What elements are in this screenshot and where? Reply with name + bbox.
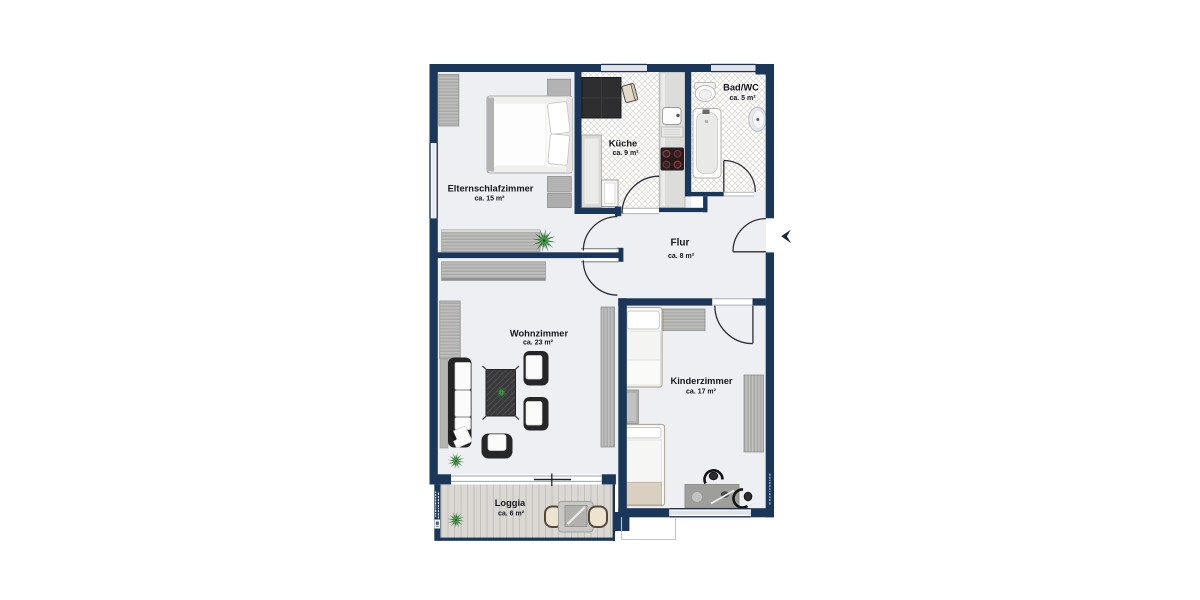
svg-text:ca. 5 m²: ca. 5 m²	[729, 95, 756, 102]
svg-text:Küche: Küche	[609, 139, 637, 149]
svg-text:Kinderzimmer: Kinderzimmer	[671, 376, 733, 386]
svg-text:ca. 23 m²: ca. 23 m²	[523, 340, 554, 347]
svg-text:Flur: Flur	[671, 238, 690, 249]
svg-text:Loggia: Loggia	[495, 498, 526, 508]
svg-text:ca. 6 m²: ca. 6 m²	[498, 511, 525, 518]
svg-text:Elternschlafzimmer: Elternschlafzimmer	[448, 184, 534, 194]
svg-text:Bad/WC: Bad/WC	[723, 83, 759, 93]
svg-text:ca. 9 m²: ca. 9 m²	[612, 150, 639, 157]
svg-text:ca. 15 m²: ca. 15 m²	[475, 196, 506, 203]
svg-text:ca. 17 m²: ca. 17 m²	[686, 389, 717, 396]
svg-text:Wohnzimmer: Wohnzimmer	[510, 329, 569, 339]
svg-text:ca. 8 m²: ca. 8 m²	[668, 253, 695, 260]
